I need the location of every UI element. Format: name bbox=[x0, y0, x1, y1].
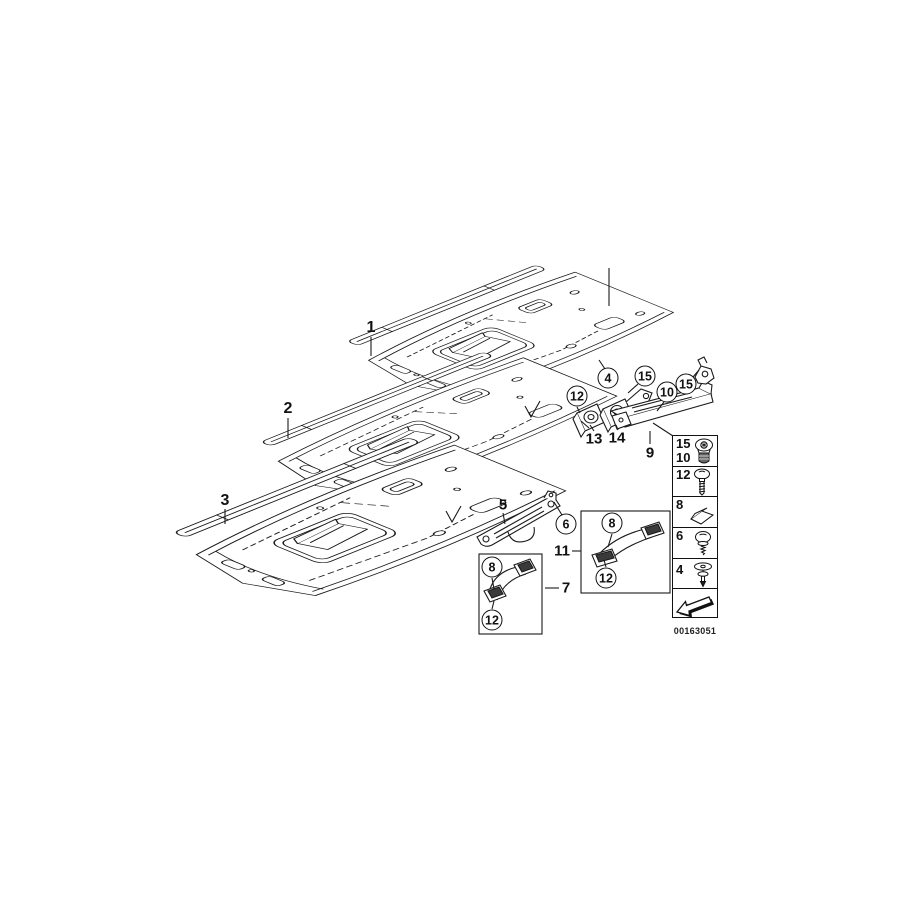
callout-8-box11[interactable]: 8 bbox=[602, 513, 623, 534]
callout-8-box7[interactable]: 8 bbox=[482, 557, 503, 578]
washer-screw-icon bbox=[690, 530, 714, 558]
part-label-3[interactable]: 3 bbox=[221, 493, 230, 509]
adhesive-pad-icon bbox=[688, 502, 716, 527]
expanding-rivet-icon bbox=[690, 560, 714, 589]
legend-row-8[interactable]: 8 bbox=[672, 496, 718, 528]
legend-row-direction bbox=[672, 588, 718, 618]
legend-number-15: 15 bbox=[676, 437, 690, 451]
part-label-11[interactable]: 11 bbox=[554, 544, 570, 559]
part-label-9[interactable]: 9 bbox=[646, 446, 654, 461]
callout-10[interactable]: 10 bbox=[657, 382, 678, 403]
callout-15-panel[interactable]: 15 bbox=[635, 366, 656, 387]
callout-6[interactable]: 6 bbox=[556, 514, 577, 535]
legend-number-6: 6 bbox=[676, 529, 683, 543]
torx-screw-icon bbox=[690, 437, 716, 467]
legend-number-10: 10 bbox=[676, 451, 690, 465]
callout-4[interactable]: 4 bbox=[598, 368, 619, 389]
legend-number-8: 8 bbox=[676, 498, 683, 512]
legend-row-15-10[interactable]: 15 10 bbox=[672, 435, 718, 467]
part-label-1[interactable]: 1 bbox=[367, 320, 376, 336]
headlining-diagram-drawing bbox=[0, 0, 900, 900]
callout-15-clip[interactable]: 15 bbox=[676, 374, 697, 395]
hex-screw-icon bbox=[690, 468, 714, 497]
legend-row-12[interactable]: 12 bbox=[672, 466, 718, 498]
legend-number-12: 12 bbox=[676, 468, 690, 482]
legend-row-4[interactable]: 4 bbox=[672, 558, 718, 589]
callout-12-box7[interactable]: 12 bbox=[482, 610, 503, 631]
fastener-legend: 15 10 12 bbox=[672, 435, 718, 618]
part-label-5[interactable]: 5 bbox=[499, 498, 507, 513]
callout-12-box11[interactable]: 12 bbox=[596, 568, 617, 589]
callout-12-panel[interactable]: 12 bbox=[567, 386, 588, 407]
part-label-2[interactable]: 2 bbox=[284, 401, 293, 417]
direction-arrow-icon bbox=[673, 590, 716, 617]
legend-number-4: 4 bbox=[676, 563, 683, 577]
legend-row-6[interactable]: 6 bbox=[672, 527, 718, 559]
part-label-14[interactable]: 14 bbox=[609, 431, 626, 446]
drawing-number: 00163051 bbox=[668, 626, 722, 636]
part-label-13[interactable]: 13 bbox=[586, 432, 603, 447]
part-label-7[interactable]: 7 bbox=[562, 581, 570, 596]
parts-diagram-page: 1 2 3 5 7 9 11 13 14 4 15 12 10 15 6 8 1… bbox=[0, 0, 900, 900]
